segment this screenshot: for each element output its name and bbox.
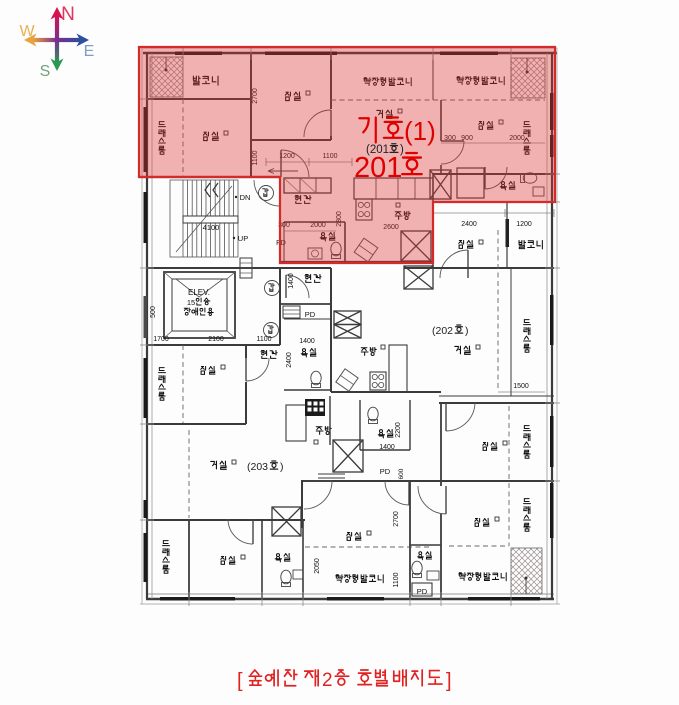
svg-text:1200: 1200 bbox=[516, 221, 532, 228]
svg-text:2200: 2200 bbox=[395, 422, 402, 438]
svg-text:DN: DN bbox=[240, 193, 251, 202]
svg-text:2050: 2050 bbox=[314, 558, 321, 574]
svg-text:1500: 1500 bbox=[513, 383, 529, 390]
svg-text:1400: 1400 bbox=[288, 273, 295, 289]
svg-text:PD: PD bbox=[380, 467, 391, 476]
svg-text:N: N bbox=[61, 4, 75, 25]
svg-text:1100: 1100 bbox=[393, 572, 400, 587]
svg-text:S: S bbox=[40, 63, 51, 80]
svg-text:(1): (1) bbox=[404, 116, 436, 146]
svg-text:PD: PD bbox=[417, 587, 428, 596]
svg-text:2: 2 bbox=[322, 670, 333, 691]
svg-text:201: 201 bbox=[354, 152, 402, 184]
svg-text:600: 600 bbox=[398, 468, 405, 479]
svg-text:): ) bbox=[280, 461, 284, 473]
svg-text:1100: 1100 bbox=[256, 336, 271, 343]
svg-text:2700: 2700 bbox=[393, 511, 400, 527]
svg-text:15: 15 bbox=[187, 298, 195, 307]
svg-text:[: [ bbox=[237, 670, 243, 692]
svg-text:): ) bbox=[465, 325, 469, 337]
svg-text:1400: 1400 bbox=[379, 444, 395, 451]
svg-text:E: E bbox=[84, 43, 95, 60]
svg-text:(202: (202 bbox=[432, 325, 453, 337]
svg-text:2400: 2400 bbox=[461, 221, 477, 228]
svg-text:1400: 1400 bbox=[299, 338, 315, 345]
svg-text:W: W bbox=[19, 23, 35, 40]
svg-text:2100: 2100 bbox=[208, 336, 224, 343]
svg-text:500: 500 bbox=[150, 306, 157, 318]
svg-text:]: ] bbox=[446, 670, 452, 692]
svg-text:UP: UP bbox=[238, 234, 248, 243]
svg-text:1700: 1700 bbox=[153, 336, 169, 343]
svg-text:ELEV.: ELEV. bbox=[188, 288, 210, 297]
svg-text:(203: (203 bbox=[247, 461, 268, 473]
svg-text:2400: 2400 bbox=[286, 352, 293, 368]
svg-text:4100: 4100 bbox=[203, 223, 220, 232]
svg-text:PD: PD bbox=[305, 310, 316, 319]
